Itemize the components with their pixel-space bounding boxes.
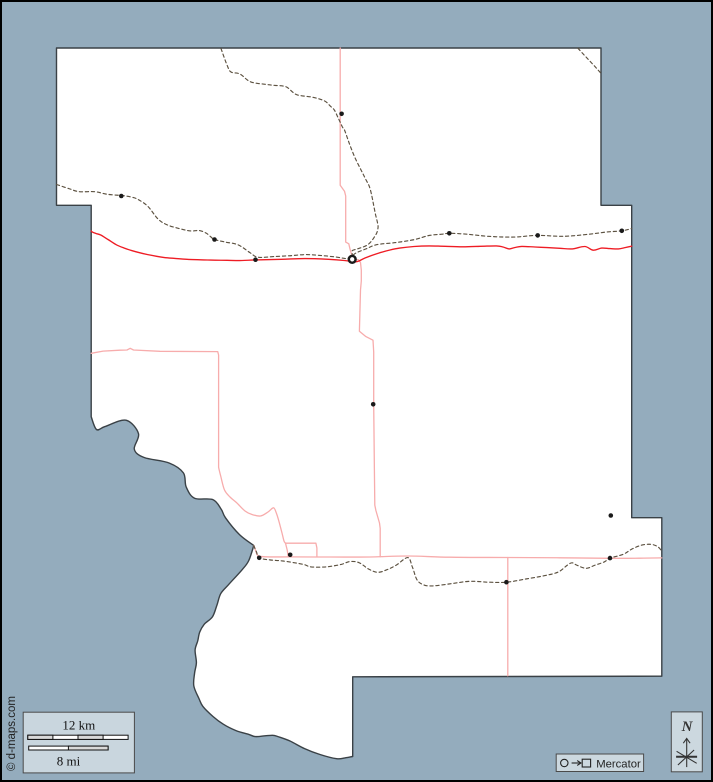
- svg-text:N: N: [681, 719, 694, 735]
- svg-text:Mercator: Mercator: [596, 759, 641, 771]
- svg-text:© d-maps.com: © d-maps.com: [6, 696, 18, 771]
- svg-text:8 mi: 8 mi: [57, 754, 81, 769]
- svg-text:12 km: 12 km: [62, 718, 95, 733]
